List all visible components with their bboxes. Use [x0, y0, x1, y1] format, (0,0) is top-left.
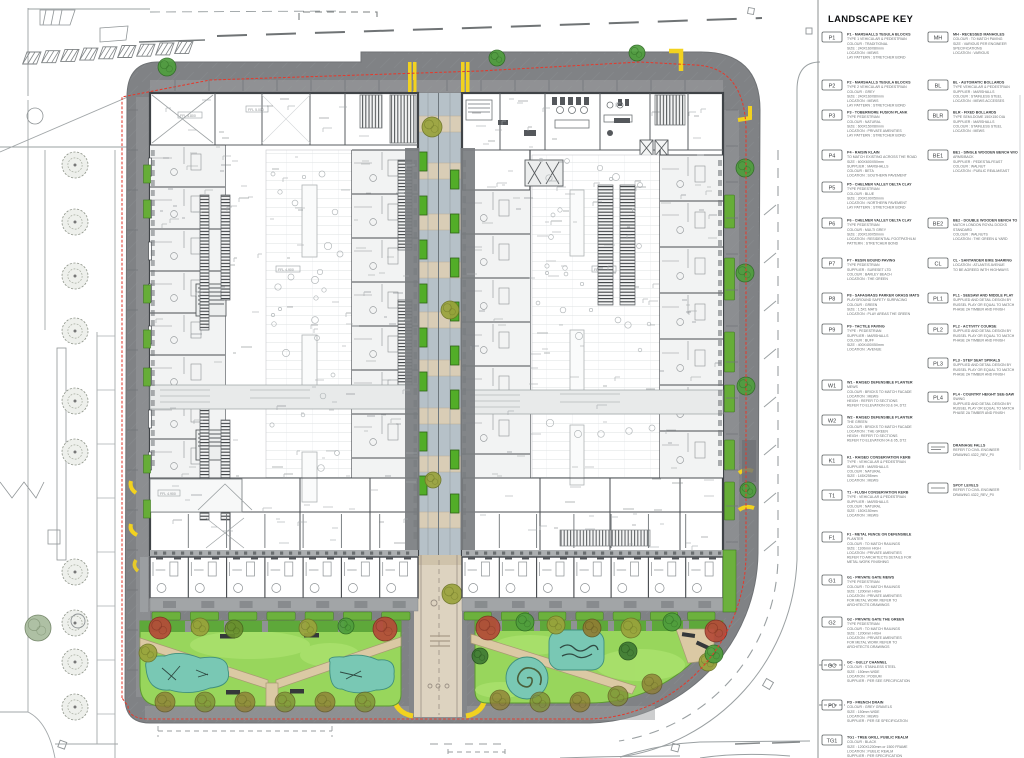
svg-text:COLOUR : NATURAL: COLOUR : NATURAL — [847, 504, 881, 508]
svg-text:PL2: PL2 — [933, 328, 943, 334]
svg-text:LOCATION : THE GREEN: LOCATION : THE GREEN — [847, 277, 888, 281]
svg-text:SIZE : 1200X1200mm or 1500 FRA: SIZE : 1200X1200mm or 1500 FRAME — [847, 745, 908, 749]
svg-text:P6: P6 — [829, 222, 836, 228]
svg-text:PL4 - COUNTRY HEIGHT SEE-SAW: PL4 - COUNTRY HEIGHT SEE-SAW — [953, 393, 1015, 397]
svg-text:PL4: PL4 — [933, 396, 943, 402]
svg-text:DRAINAGE FALLS: DRAINAGE FALLS — [953, 444, 986, 448]
svg-text:FFL 4.900: FFL 4.900 — [160, 492, 176, 496]
svg-text:F1 - METAL FENCE ON DEFENSIBLE: F1 - METAL FENCE ON DEFENSIBLE — [847, 533, 912, 537]
svg-text:CL: CL — [934, 262, 941, 268]
svg-text:TYPE PEDESTRIAN: TYPE PEDESTRIAN — [847, 580, 880, 584]
svg-text:P5: P5 — [829, 186, 836, 192]
svg-text:PHASE 2A TIMBER AND FINISH: PHASE 2A TIMBER AND FINISH — [953, 338, 1005, 342]
svg-text:SIZE : 600X600X50mm: SIZE : 600X600X50mm — [847, 160, 884, 164]
svg-text:PHASE 2A TIMBER AND FINISH: PHASE 2A TIMBER AND FINISH — [953, 411, 1005, 415]
svg-text:LOCATION : VARIOUS: LOCATION : VARIOUS — [953, 51, 990, 55]
svg-text:SIZE : 150mm WIDE: SIZE : 150mm WIDE — [847, 710, 880, 714]
svg-text:COLOUR : STAINLESS STEEL: COLOUR : STAINLESS STEEL — [953, 94, 1002, 98]
svg-text:P5 - CHELMER VALLEY DELTA CLAY: P5 - CHELMER VALLEY DELTA CLAY — [847, 183, 912, 187]
svg-text:LAY PATTERN : STRETCHER BOND: LAY PATTERN : STRETCHER BOND — [847, 206, 906, 210]
svg-text:P3: P3 — [829, 114, 836, 120]
svg-text:BLR - FIXED BOLLARDS: BLR - FIXED BOLLARDS — [953, 111, 997, 115]
svg-text:COLOUR : BARLEY BEACH: COLOUR : BARLEY BEACH — [847, 272, 892, 276]
svg-text:SUPPLIER : SURESET LTD: SUPPLIER : SURESET LTD — [847, 268, 891, 272]
svg-text:PL1 - SEESAW AND MIDDLE PLAY: PL1 - SEESAW AND MIDDLE PLAY — [953, 294, 1014, 298]
svg-text:DRAWING 4322_REV_P0: DRAWING 4322_REV_P0 — [953, 453, 994, 457]
svg-text:SUPPLIER : MARSHALLS: SUPPLIER : MARSHALLS — [847, 500, 889, 504]
svg-text:COLOUR : MULTI GREY: COLOUR : MULTI GREY — [847, 228, 887, 232]
svg-text:P1 - MARSHALLS TEGULA BLOCKS: P1 - MARSHALLS TEGULA BLOCKS — [847, 33, 911, 37]
svg-text:TYPE : PEDESTRIAN: TYPE : PEDESTRIAN — [847, 329, 882, 333]
svg-text:G1 - PRIVATE GATE MEWS: G1 - PRIVATE GATE MEWS — [847, 576, 895, 580]
svg-text:TYPE : VEHICULAR & PEDESTRIAN: TYPE : VEHICULAR & PEDESTRIAN — [847, 495, 906, 499]
svg-text:SIZE : 145X255mm: SIZE : 145X255mm — [847, 474, 878, 478]
svg-text:FOR METAL WORK REFER TO: FOR METAL WORK REFER TO — [847, 641, 897, 645]
svg-text:W1: W1 — [828, 384, 836, 390]
svg-text:SUPPLIER : MARSHALLS: SUPPLIER : MARSHALLS — [847, 334, 889, 338]
svg-text:LANDSCAPE KEY: LANDSCAPE KEY — [828, 14, 914, 25]
svg-text:SIZE : VARIOUS PER ENGINEER: SIZE : VARIOUS PER ENGINEER — [953, 42, 1007, 46]
svg-text:SIZE : 200X100X50mm: SIZE : 200X100X50mm — [847, 196, 884, 200]
svg-text:TYPE PEDESTRIAN: TYPE PEDESTRIAN — [847, 223, 880, 227]
svg-text:LAY PATTERN : STRETCHER BOND: LAY PATTERN : STRETCHER BOND — [847, 134, 906, 138]
svg-text:SWING: SWING — [953, 397, 965, 401]
svg-text:SUPPLIER : MARSHALLS: SUPPLIER : MARSHALLS — [953, 90, 995, 94]
svg-text:LOCATION : THE GREEN & YARD: LOCATION : THE GREEN & YARD — [953, 237, 1008, 241]
svg-text:PL3 - STEP SEAT SPIRALS: PL3 - STEP SEAT SPIRALS — [953, 359, 1001, 363]
svg-text:P7 - RESIN BOUND PAVING: P7 - RESIN BOUND PAVING — [847, 259, 895, 263]
svg-text:LOCATION : PUBLIC REALM: LOCATION : PUBLIC REALM — [847, 749, 893, 753]
svg-text:FOR METAL WORK REFER TO: FOR METAL WORK REFER TO — [847, 599, 897, 603]
svg-text:P2 - MARSHALLS TEGULA BLOCKS: P2 - MARSHALLS TEGULA BLOCKS — [847, 81, 911, 85]
svg-text:PLAYGROUND SAFETY SURFACING: PLAYGROUND SAFETY SURFACING — [847, 298, 907, 302]
svg-text:BL: BL — [935, 84, 942, 90]
svg-text:ARMS/BACK: ARMS/BACK — [953, 155, 974, 159]
svg-text:COLOUR : BUFF: COLOUR : BUFF — [847, 338, 874, 342]
svg-text:PL3: PL3 — [933, 362, 943, 368]
svg-text:SIZE : 1.5X1 MATS: SIZE : 1.5X1 MATS — [847, 307, 878, 311]
svg-text:COLOUR : NATURAL: COLOUR : NATURAL — [847, 469, 881, 473]
svg-text:LOCATION : PODIUM: LOCATION : PODIUM — [847, 674, 882, 678]
svg-text:TO BE AGREED WITH HIGHWAYS: TO BE AGREED WITH HIGHWAYS — [953, 268, 1009, 272]
svg-text:MEWS: MEWS — [847, 385, 859, 389]
svg-text:SIZE : 400X400X50mm: SIZE : 400X400X50mm — [847, 343, 884, 347]
svg-text:LAY PATTERN : STRETCHER BOND: LAY PATTERN : STRETCHER BOND — [847, 56, 906, 60]
svg-text:LOCATION : MEWS: LOCATION : MEWS — [953, 129, 985, 133]
svg-text:LOCATION : THE GREEN: LOCATION : THE GREEN — [847, 429, 888, 433]
svg-text:SIZE : 150X150mm: SIZE : 150X150mm — [847, 509, 878, 513]
svg-text:LOCATION : MEWS ACCESSES: LOCATION : MEWS ACCESSES — [953, 99, 1005, 103]
svg-text:LOCATION : MEWS: LOCATION : MEWS — [847, 514, 879, 518]
svg-text:SIZE : 240X160X80mm: SIZE : 240X160X80mm — [847, 94, 884, 98]
svg-text:P9 - TACTILE PAVING: P9 - TACTILE PAVING — [847, 325, 885, 329]
svg-text:TYPE 2 VEHICULAR & PEDESTRIAN: TYPE 2 VEHICULAR & PEDESTRIAN — [847, 85, 907, 89]
svg-text:LOCATION : MEWS: LOCATION : MEWS — [847, 99, 879, 103]
svg-text:SUPPLIED AND DETAIL DESIGN BY: SUPPLIED AND DETAIL DESIGN BY — [953, 363, 1012, 367]
svg-text:ARCHITECTS DRAWINGS: ARCHITECTS DRAWINGS — [847, 645, 890, 649]
svg-text:LOCATION : MEWS: LOCATION : MEWS — [847, 51, 879, 55]
svg-text:COLOUR : WALNUT: COLOUR : WALNUT — [953, 164, 986, 168]
svg-text:MATCH LONDON ROYAL DOCKS: MATCH LONDON ROYAL DOCKS — [953, 223, 1008, 227]
svg-text:COLOUR : TO MATCH RAILINGS: COLOUR : TO MATCH RAILINGS — [847, 542, 901, 546]
svg-text:PATTERN : STRETCHER BOND: PATTERN : STRETCHER BOND — [847, 242, 899, 246]
svg-text:P9: P9 — [829, 328, 836, 334]
svg-text:SUPPLIER : PER SE SPECIFICATIO: SUPPLIER : PER SE SPECIFICATION — [847, 719, 908, 723]
svg-text:P8: P8 — [829, 297, 836, 303]
svg-text:SUPPLIER : MARSHALLS: SUPPLIER : MARSHALLS — [953, 120, 995, 124]
svg-text:STANDARD: STANDARD — [953, 228, 972, 232]
svg-text:W1 - RAISED DEFENSIBLE PLANTER: W1 - RAISED DEFENSIBLE PLANTER — [847, 381, 913, 385]
svg-text:TG1: TG1 — [827, 739, 838, 745]
svg-text:BLR: BLR — [933, 114, 944, 120]
svg-text:COLOUR : TO MATCH PAVING: COLOUR : TO MATCH PAVING — [953, 37, 1003, 41]
svg-text:GC: GC — [828, 664, 836, 670]
svg-text:COLOUR : STAINLESS STEEL: COLOUR : STAINLESS STEEL — [953, 124, 1002, 128]
svg-text:G2: G2 — [828, 621, 835, 627]
svg-text:P7: P7 — [829, 262, 836, 268]
svg-text:LOCATION : MEWS: LOCATION : MEWS — [847, 394, 879, 398]
svg-text:TYPE 1 VEHICULAR & PEDESTRIAN: TYPE 1 VEHICULAR & PEDESTRIAN — [847, 37, 907, 41]
svg-text:LOCATION : AVENUE: LOCATION : AVENUE — [847, 348, 882, 352]
svg-text:P4: P4 — [829, 154, 836, 160]
svg-text:G1: G1 — [828, 579, 835, 585]
svg-text:LOCATION : PRIVATE AMENITIES: LOCATION : PRIVATE AMENITIES — [847, 594, 902, 598]
svg-text:T1: T1 — [829, 494, 835, 500]
svg-text:P4 - RAISIN KLAIN: P4 - RAISIN KLAIN — [847, 151, 880, 155]
svg-text:COLOUR : WALNUTS: COLOUR : WALNUTS — [953, 232, 989, 236]
svg-text:TYPE PEDESTRIAN: TYPE PEDESTRIAN — [847, 622, 880, 626]
svg-text:W2: W2 — [828, 419, 836, 425]
svg-text:COLOUR : GREEN: COLOUR : GREEN — [847, 303, 878, 307]
svg-text:METAL WORK FINISHING: METAL WORK FINISHING — [847, 560, 889, 564]
svg-text:RUSSEL PLAY OR EQUAL TO MATCH: RUSSEL PLAY OR EQUAL TO MATCH — [953, 368, 1015, 372]
svg-text:SPOT LEVELS: SPOT LEVELS — [953, 484, 979, 488]
svg-text:TYPE PEDESTRIAN: TYPE PEDESTRIAN — [847, 115, 880, 119]
svg-text:COLOUR : BLUE: COLOUR : BLUE — [847, 192, 875, 196]
svg-text:BE2: BE2 — [933, 222, 943, 228]
svg-text:COLOUR : BRICKS TO MATCH FACAD: COLOUR : BRICKS TO MATCH FACADE — [847, 390, 912, 394]
svg-text:RUSSEL PLAY OR EQUAL TO MATCH: RUSSEL PLAY OR EQUAL TO MATCH — [953, 303, 1015, 307]
svg-text:W2 - RAISED DEFENSIBLE PLANTER: W2 - RAISED DEFENSIBLE PLANTER — [847, 416, 913, 420]
svg-text:COLOUR : BRICKS TO MATCH FACAD: COLOUR : BRICKS TO MATCH FACADE — [847, 425, 912, 429]
svg-text:SIZE : 240X160X80mm: SIZE : 240X160X80mm — [847, 46, 884, 50]
svg-text:PL1: PL1 — [933, 297, 943, 303]
svg-text:COLOUR : TRADITIONAL: COLOUR : TRADITIONAL — [847, 42, 888, 46]
svg-text:FFL 5.000: FFL 5.000 — [248, 108, 264, 112]
svg-text:MH: MH — [934, 36, 943, 42]
svg-text:LOCATION : ATLANTIS AVENUE: LOCATION : ATLANTIS AVENUE — [953, 263, 1005, 267]
svg-text:LOCATION : PRIVATE AMENITIES: LOCATION : PRIVATE AMENITIES — [847, 551, 902, 555]
svg-text:P1: P1 — [829, 36, 836, 42]
svg-text:SUPPLIER : MARSHALLS: SUPPLIER : MARSHALLS — [847, 164, 889, 168]
svg-text:FFL 4.900: FFL 4.900 — [278, 268, 294, 272]
svg-text:COLOUR : NATURAL: COLOUR : NATURAL — [847, 120, 881, 124]
svg-text:TYPE SEMI-DOME 150X150 DIA: TYPE SEMI-DOME 150X150 DIA — [953, 115, 1006, 119]
svg-text:TYPE : VEHICULAR & PEDESTRIAN: TYPE : VEHICULAR & PEDESTRIAN — [847, 460, 906, 464]
svg-text:PD - FRENCH DRAIN: PD - FRENCH DRAIN — [847, 701, 884, 705]
svg-text:SIZE : 600X150X80mm: SIZE : 600X150X80mm — [847, 124, 884, 128]
svg-text:SUPPLIER : MARSHALLS: SUPPLIER : MARSHALLS — [847, 465, 889, 469]
svg-text:TYPE PEDESTRIAN: TYPE PEDESTRIAN — [847, 187, 880, 191]
svg-text:SUPPLIER : PER SEE SPECIFICATI: SUPPLIER : PER SEE SPECIFICATION — [847, 679, 910, 683]
svg-text:LOCATION : RESIDENTIAL FOOTPAT: LOCATION : RESIDENTIAL FOOTPATH/LM — [847, 237, 916, 241]
svg-text:LOCATION : PUBLIC REALM/EAST: LOCATION : PUBLIC REALM/EAST — [953, 169, 1010, 173]
svg-text:LOCATION : PLAY AREAS THE GREE: LOCATION : PLAY AREAS THE GREEN — [847, 312, 911, 316]
svg-text:LOCATION : MEWS: LOCATION : MEWS — [847, 714, 879, 718]
svg-text:LOCATION : NORTHERN PAVEMENT: LOCATION : NORTHERN PAVEMENT — [847, 201, 908, 205]
svg-text:COLOUR : BETA: COLOUR : BETA — [847, 169, 874, 173]
svg-text:CL - SANTANDER BIKE SHARING: CL - SANTANDER BIKE SHARING — [953, 259, 1012, 263]
svg-text:REFER TO ARCHITECTS DETAILS FO: REFER TO ARCHITECTS DETAILS FOR — [847, 556, 912, 560]
svg-text:COLOUR : GREY GRAVELS: COLOUR : GREY GRAVELS — [847, 705, 893, 709]
svg-text:GC - GULLY CHANNEL: GC - GULLY CHANNEL — [847, 661, 888, 665]
svg-text:SUPPLIED AND DETAIL DESIGN BY: SUPPLIED AND DETAIL DESIGN BY — [953, 402, 1012, 406]
svg-text:T1 - FLUSH CONSERVATION KERB: T1 - FLUSH CONSERVATION KERB — [847, 491, 909, 495]
svg-text:DRAWING 4322_REV_P0: DRAWING 4322_REV_P0 — [953, 493, 994, 497]
svg-text:HEIGH : REFER TO SECTIONS: HEIGH : REFER TO SECTIONS — [847, 434, 898, 438]
svg-text:K1: K1 — [829, 459, 836, 465]
svg-text:BE1 - SINGLE WOODEN BENCH W/O: BE1 - SINGLE WOODEN BENCH W/O — [953, 151, 1018, 155]
svg-text:FFL 4.800: FFL 4.800 — [180, 114, 196, 118]
svg-text:TO MATCH EXISTING ACROSS THE R: TO MATCH EXISTING ACROSS THE ROAD — [847, 155, 917, 159]
svg-text:THE GREEN: THE GREEN — [847, 420, 868, 424]
svg-text:BE2 - DOUBLE WOODEN BENCH TO: BE2 - DOUBLE WOODEN BENCH TO — [953, 219, 1017, 223]
svg-text:REFER TO CIVIL ENGINEER: REFER TO CIVIL ENGINEER — [953, 448, 1000, 452]
svg-text:SUPPLIED AND DETAIL DESIGN BY: SUPPLIED AND DETAIL DESIGN BY — [953, 298, 1012, 302]
svg-text:P3 - TOBERMORE FUSION PLANK: P3 - TOBERMORE FUSION PLANK — [847, 111, 908, 115]
svg-text:COLOUR : BLACK: COLOUR : BLACK — [847, 740, 877, 744]
svg-text:G2 - PRIVATE GATE THE GREEN: G2 - PRIVATE GATE THE GREEN — [847, 618, 904, 622]
svg-text:P8 - SAFAGRASS PARKER GRASS MA: P8 - SAFAGRASS PARKER GRASS MATS — [847, 294, 920, 298]
svg-text:SIZE : 1100mm HIGH: SIZE : 1100mm HIGH — [847, 546, 881, 550]
svg-text:P2: P2 — [829, 84, 836, 90]
svg-text:SUPPLIED AND DETAIL DESIGN BY: SUPPLIED AND DETAIL DESIGN BY — [953, 329, 1012, 333]
svg-text:LOCATION : SOUTHERN PAVEMENT: LOCATION : SOUTHERN PAVEMENT — [847, 174, 908, 178]
svg-text:SIZE : 150mm WIDE: SIZE : 150mm WIDE — [847, 670, 880, 674]
svg-text:F1: F1 — [829, 536, 835, 542]
svg-text:PD: PD — [828, 704, 836, 710]
svg-text:MH - RECESSED MANHOLES: MH - RECESSED MANHOLES — [953, 33, 1005, 37]
svg-text:COLOUR : STAINLESS STEEL: COLOUR : STAINLESS STEEL — [847, 665, 896, 669]
svg-text:PHASE 2A TIMBER AND FINISH: PHASE 2A TIMBER AND FINISH — [953, 307, 1005, 311]
svg-text:SPECIFICATIONS: SPECIFICATIONS — [953, 46, 983, 50]
svg-text:K1 - RAISED CONSERVATION KERB: K1 - RAISED CONSERVATION KERB — [847, 456, 911, 460]
svg-text:RUSSEL PLAY OR EQUAL TO MATCH: RUSSEL PLAY OR EQUAL TO MATCH — [953, 334, 1015, 338]
svg-text:COLOUR : GREY: COLOUR : GREY — [847, 90, 875, 94]
svg-text:LOCATION : PRIVATE AMENITIES: LOCATION : PRIVATE AMENITIES — [847, 129, 902, 133]
svg-text:TYPE PEDESTRIAN: TYPE PEDESTRIAN — [847, 263, 880, 267]
svg-text:COLOUR : TO MATCH RAILINGS: COLOUR : TO MATCH RAILINGS — [847, 585, 901, 589]
svg-text:COLOUR : TO MATCH RAILINGS: COLOUR : TO MATCH RAILINGS — [847, 627, 901, 631]
svg-text:BE1: BE1 — [933, 154, 943, 160]
svg-text:P6 - CHELMER VALLEY DELTA CLAY: P6 - CHELMER VALLEY DELTA CLAY — [847, 219, 912, 223]
svg-text:LOCATION : PRIVATE AMENITIES: LOCATION : PRIVATE AMENITIES — [847, 636, 902, 640]
svg-text:PL2 - ACTIVITY COURSE: PL2 - ACTIVITY COURSE — [953, 325, 997, 329]
svg-text:SUPPLIER : PEDESTALFEAST: SUPPLIER : PEDESTALFEAST — [953, 160, 1003, 164]
svg-text:LOCATION : MEWS: LOCATION : MEWS — [847, 479, 879, 483]
svg-text:REFER TO ELEVATION 04 & 05, DT: REFER TO ELEVATION 04 & 05, DT2 — [847, 439, 906, 443]
svg-text:PLANTER: PLANTER — [847, 537, 864, 541]
svg-text:REFER TO CIVIL ENGINEER: REFER TO CIVIL ENGINEER — [953, 488, 1000, 492]
svg-text:SUPPLIER : PER SPECIFICATION: SUPPLIER : PER SPECIFICATION — [847, 754, 902, 758]
svg-text:LAY PATTERN : STRETCHER BOND: LAY PATTERN : STRETCHER BOND — [847, 104, 906, 108]
svg-text:RUSSEL PLAY OR EQUAL TO MATCH: RUSSEL PLAY OR EQUAL TO MATCH — [953, 406, 1015, 410]
svg-text:TG1 - TREE GRILL PUBLIC REALM: TG1 - TREE GRILL PUBLIC REALM — [847, 736, 908, 740]
svg-text:BL - AUTOMATIC BOLLARDS: BL - AUTOMATIC BOLLARDS — [953, 81, 1005, 85]
svg-text:ARCHITECTS DRAWINGS: ARCHITECTS DRAWINGS — [847, 603, 890, 607]
svg-text:SIZE : 1200mm HIGH: SIZE : 1200mm HIGH — [847, 589, 882, 593]
svg-text:REFER TO ELEVATION 03 & 04, DT: REFER TO ELEVATION 03 & 04, DT2 — [847, 404, 906, 408]
svg-text:TYPE VEHICULAR & PEDESTRIAN: TYPE VEHICULAR & PEDESTRIAN — [953, 85, 1010, 89]
svg-text:PHASE 2A TIMBER AND FINISH: PHASE 2A TIMBER AND FINISH — [953, 372, 1005, 376]
svg-text:SIZE : 1200mm HIGH: SIZE : 1200mm HIGH — [847, 631, 882, 635]
svg-text:HEIGH : REFER TO SECTIONS: HEIGH : REFER TO SECTIONS — [847, 399, 898, 403]
svg-text:SIZE : 200X100X50mm: SIZE : 200X100X50mm — [847, 232, 884, 236]
